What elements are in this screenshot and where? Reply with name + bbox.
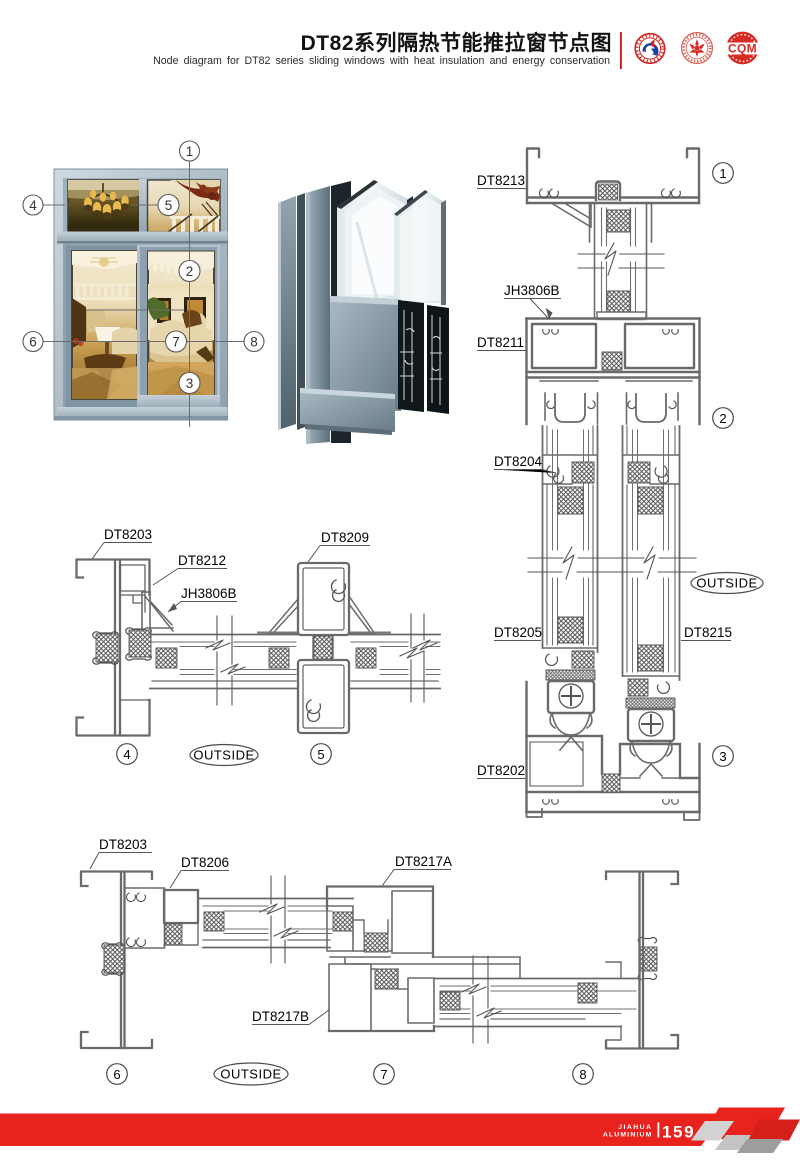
svg-text:JH3806B: JH3806B: [504, 283, 560, 298]
svg-text:OUTSIDE: OUTSIDE: [220, 1067, 281, 1082]
svg-text:DT8215: DT8215: [684, 625, 732, 640]
svg-text:JH3806B: JH3806B: [181, 586, 237, 601]
svg-text:4: 4: [123, 747, 130, 762]
svg-text:6: 6: [29, 334, 37, 349]
svg-text:5: 5: [317, 747, 324, 762]
svg-text:DT8212: DT8212: [178, 553, 226, 568]
svg-text:3: 3: [186, 376, 194, 391]
svg-text:DT8213: DT8213: [477, 173, 525, 188]
svg-text:6: 6: [113, 1067, 120, 1082]
svg-text:DT8217A: DT8217A: [395, 854, 452, 869]
svg-text:DT8206: DT8206: [181, 855, 229, 870]
svg-text:DT8209: DT8209: [321, 530, 369, 545]
svg-text:DT8205: DT8205: [494, 625, 542, 640]
svg-text:OUTSIDE: OUTSIDE: [193, 748, 254, 763]
svg-text:DT8203: DT8203: [104, 527, 152, 542]
svg-text:1: 1: [719, 166, 726, 181]
svg-text:7: 7: [380, 1067, 387, 1082]
svg-text:OUTSIDE: OUTSIDE: [696, 576, 757, 591]
svg-text:DT8204: DT8204: [494, 454, 543, 469]
svg-text:8: 8: [250, 334, 258, 349]
svg-text:3: 3: [719, 749, 726, 764]
svg-text:8: 8: [579, 1067, 586, 1082]
svg-text:DT8202: DT8202: [477, 763, 525, 778]
svg-text:7: 7: [172, 334, 180, 349]
svg-text:1: 1: [186, 144, 194, 159]
svg-text:JIAHUA: JIAHUA: [618, 1124, 652, 1131]
svg-text:159: 159: [662, 1123, 695, 1142]
svg-text:4: 4: [29, 198, 37, 213]
svg-text:2: 2: [186, 264, 194, 279]
svg-text:ALUMINIUM: ALUMINIUM: [603, 1132, 653, 1139]
svg-text:2: 2: [719, 411, 726, 426]
svg-text:CQM: CQM: [728, 42, 757, 56]
svg-text:DT8211: DT8211: [477, 335, 524, 350]
svg-text:DT8217B: DT8217B: [252, 1009, 309, 1024]
svg-text:5: 5: [165, 198, 173, 213]
svg-text:DT8203: DT8203: [99, 837, 147, 852]
